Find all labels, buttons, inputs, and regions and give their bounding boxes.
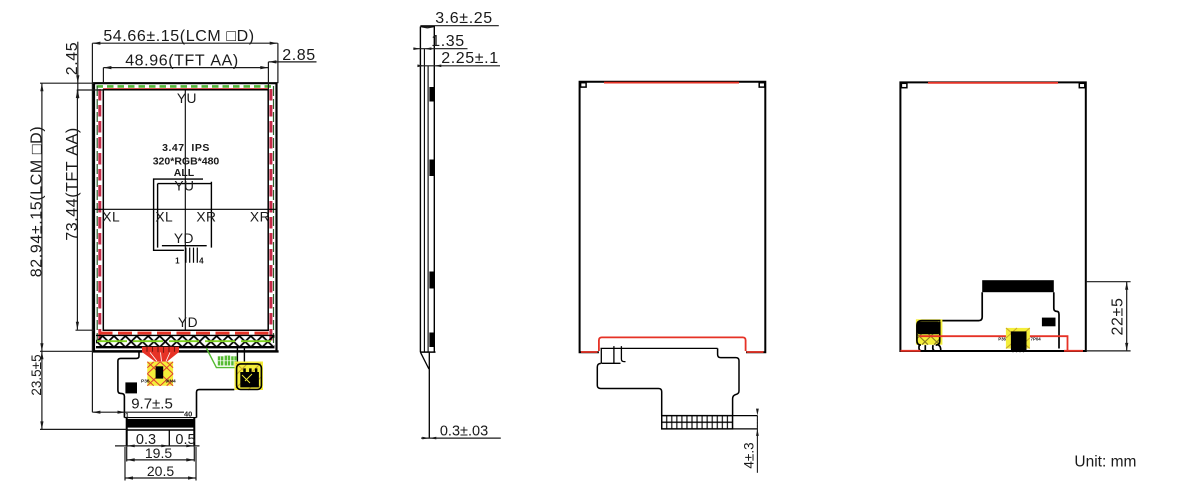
svg-text:2.25±.1: 2.25±.1 (441, 50, 498, 67)
svg-text:22±5: 22±5 (1110, 298, 1127, 336)
svg-text:73.44(TFT AA): 73.44(TFT AA) (64, 127, 81, 241)
svg-text:40: 40 (184, 410, 192, 419)
svg-text:320*RGB*480: 320*RGB*480 (153, 156, 220, 168)
svg-text:ALL: ALL (174, 167, 195, 179)
svg-text:1: 1 (175, 257, 180, 266)
svg-text:20.5: 20.5 (147, 463, 174, 479)
svg-text:82.94±.15(LCM □D): 82.94±.15(LCM □D) (28, 126, 45, 277)
svg-text:3.47 IPS: 3.47 IPS (162, 142, 210, 154)
svg-text:7P04: 7P04 (1031, 337, 1042, 342)
svg-text:XL: XL (102, 210, 120, 225)
svg-text:YU: YU (177, 91, 197, 106)
svg-text:19.5: 19.5 (145, 445, 172, 461)
svg-text:9.7±.5: 9.7±.5 (131, 396, 173, 413)
svg-text:2.45: 2.45 (64, 42, 81, 76)
svg-text:1: 1 (125, 412, 129, 419)
svg-text:YU: YU (174, 179, 194, 194)
svg-text:P36: P36 (998, 337, 1006, 342)
svg-text:XL: XL (155, 210, 173, 225)
svg-text:9IN4: 9IN4 (166, 378, 176, 384)
svg-text:54.66±.15(LCM □D): 54.66±.15(LCM □D) (103, 28, 254, 45)
svg-text:YD: YD (174, 231, 194, 246)
svg-text:1.35: 1.35 (431, 33, 465, 50)
svg-text:23.5±5: 23.5±5 (29, 354, 44, 395)
svg-text:3.6±.25: 3.6±.25 (435, 10, 492, 27)
svg-text:2.85: 2.85 (282, 47, 316, 64)
svg-text:48.96(TFT AA): 48.96(TFT AA) (125, 53, 239, 70)
svg-text:4: 4 (199, 257, 204, 266)
svg-text:XR: XR (196, 210, 216, 225)
svg-text:0.5: 0.5 (175, 432, 195, 448)
svg-text:4±.3: 4±.3 (742, 442, 757, 468)
svg-text:YD: YD (178, 315, 198, 330)
svg-text:Unit: mm: Unit: mm (1074, 454, 1136, 471)
svg-text:XR: XR (250, 210, 270, 225)
svg-text:P36: P36 (141, 378, 150, 384)
svg-text:0.3±.03: 0.3±.03 (440, 423, 488, 439)
